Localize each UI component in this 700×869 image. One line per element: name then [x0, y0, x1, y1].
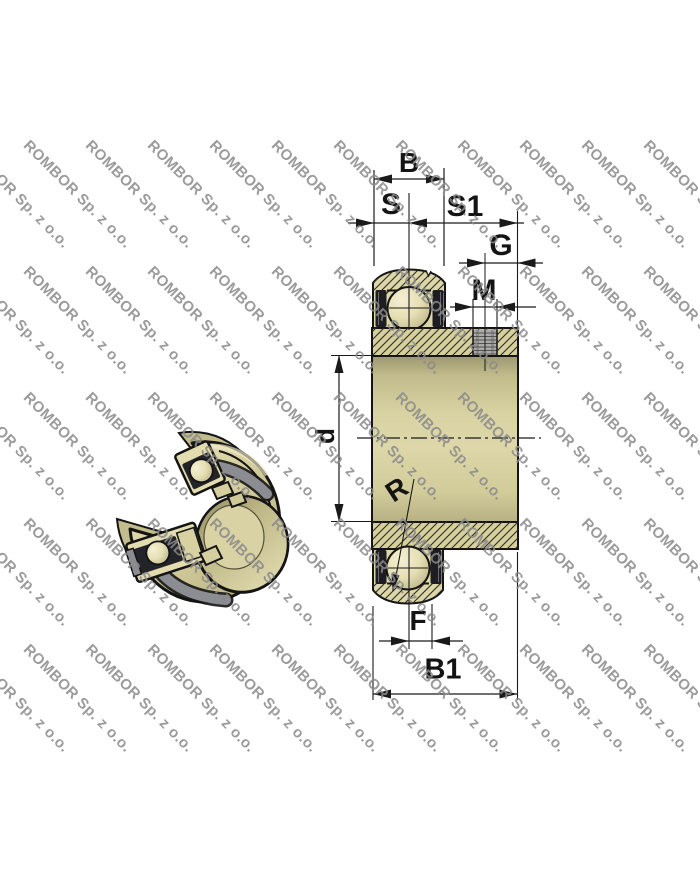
seal-left: [376, 550, 387, 584]
seal-right: [431, 550, 442, 584]
inner-ring-top: [372, 328, 518, 356]
dim-label-m: M: [472, 276, 497, 306]
dim-label-f: F: [409, 607, 426, 635]
bearing-3d-view: [117, 432, 288, 602]
dim-label-b1: B1: [424, 656, 461, 685]
cross-section-view: [357, 268, 541, 606]
dim-label-d: d: [312, 428, 338, 444]
bearing-drawing-page: B S S1 G M d R F B1 ROMBOR Sp. z o.o.ROM…: [0, 0, 700, 869]
inner-ring-bottom: [372, 522, 518, 549]
seal-left: [376, 290, 387, 327]
dim-label-s: S: [381, 190, 401, 220]
dim-label-s1: S1: [447, 192, 484, 222]
technical-drawing: [0, 0, 700, 869]
dim-label-b: B: [399, 149, 419, 177]
dim-label-g: G: [489, 231, 512, 261]
seal-right: [433, 290, 444, 327]
